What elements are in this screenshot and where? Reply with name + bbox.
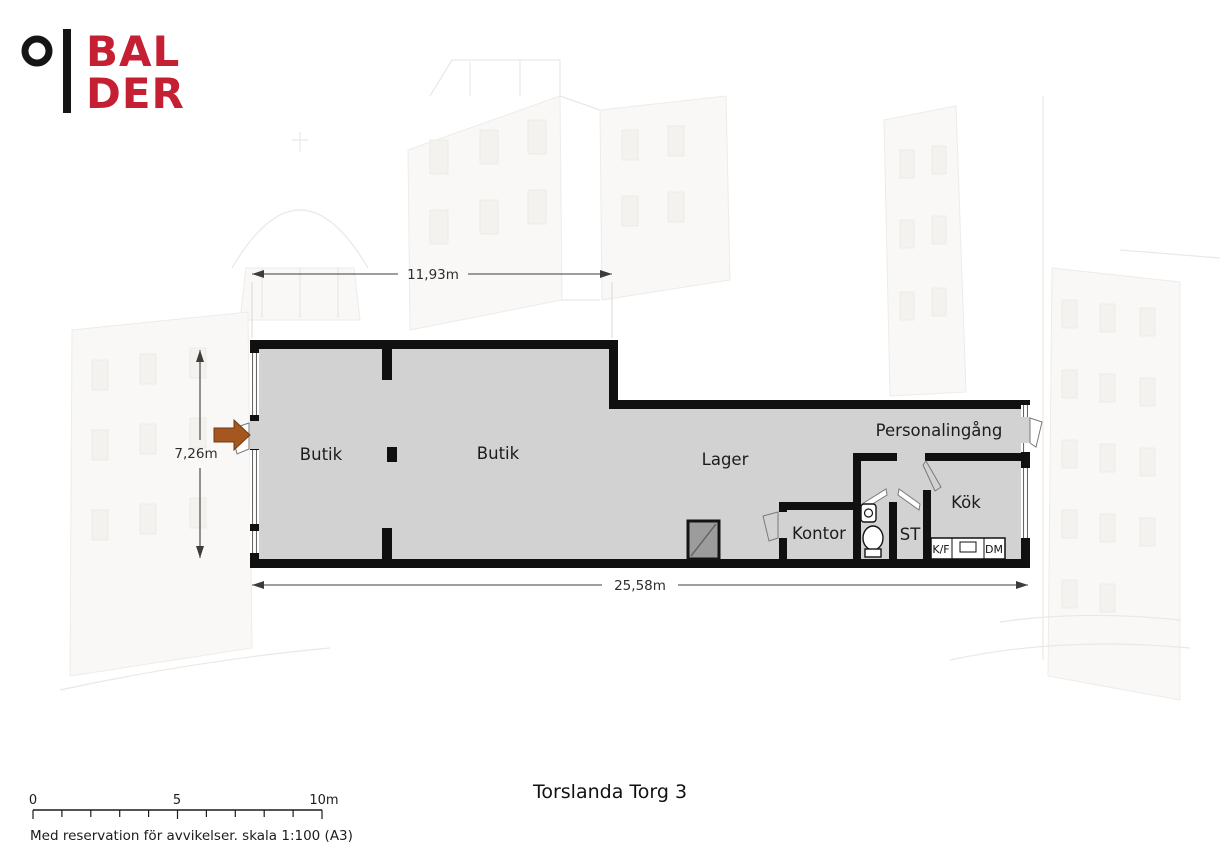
logo-ring-icon — [25, 39, 49, 63]
dimension-left-label: 7,26m — [174, 446, 217, 462]
room-label-kontor: Kontor — [792, 524, 846, 543]
page-title: Torslanda Torg 3 — [532, 781, 687, 803]
room-label-kok: Kök — [951, 493, 981, 512]
kitchen-counter: K/F DM — [931, 538, 1005, 559]
dimension-top-label: 11,93m — [407, 267, 459, 283]
room-label-personalingang: Personalingång — [876, 421, 1003, 440]
dimension-bottom: 25,58m — [252, 578, 1028, 594]
right-facade — [1021, 405, 1042, 538]
scale-tick-0: 0 — [29, 793, 37, 808]
footer: Torslanda Torg 3 0 5 10m Med reservation… — [29, 781, 687, 844]
room-label-butik-2: Butik — [477, 444, 520, 463]
staff-door-leaf — [1030, 418, 1042, 447]
scale-bar: 0 5 10m — [29, 793, 339, 819]
fridge-freezer-label: K/F — [932, 543, 949, 556]
logo-bar-icon — [63, 29, 71, 113]
floor-plan-canvas: BAL DER — [0, 0, 1220, 863]
brand-logo: BAL DER — [25, 27, 185, 118]
shaft — [688, 521, 719, 559]
dimension-bottom-label: 25,58m — [614, 578, 666, 594]
sink-icon — [861, 504, 876, 522]
logo-text-line2: DER — [86, 69, 185, 118]
room-label-st: ST — [900, 525, 921, 544]
scale-tick-5: 5 — [173, 793, 181, 808]
floorplan-page: { "brand": { "logo_line1": "BAL", "logo_… — [0, 0, 1220, 863]
dishwasher-label: DM — [985, 543, 1003, 556]
toilet-icon — [863, 526, 883, 550]
scale-tick-10m: 10m — [309, 793, 338, 808]
disclaimer-text: Med reservation för avvikelser. skala 1:… — [30, 828, 353, 844]
staff-door-opening — [1021, 417, 1030, 443]
background-watermark — [60, 60, 1220, 700]
room-label-butik-1: Butik — [300, 445, 343, 464]
room-label-lager: Lager — [702, 450, 749, 469]
entrance-door-opening — [250, 421, 259, 449]
